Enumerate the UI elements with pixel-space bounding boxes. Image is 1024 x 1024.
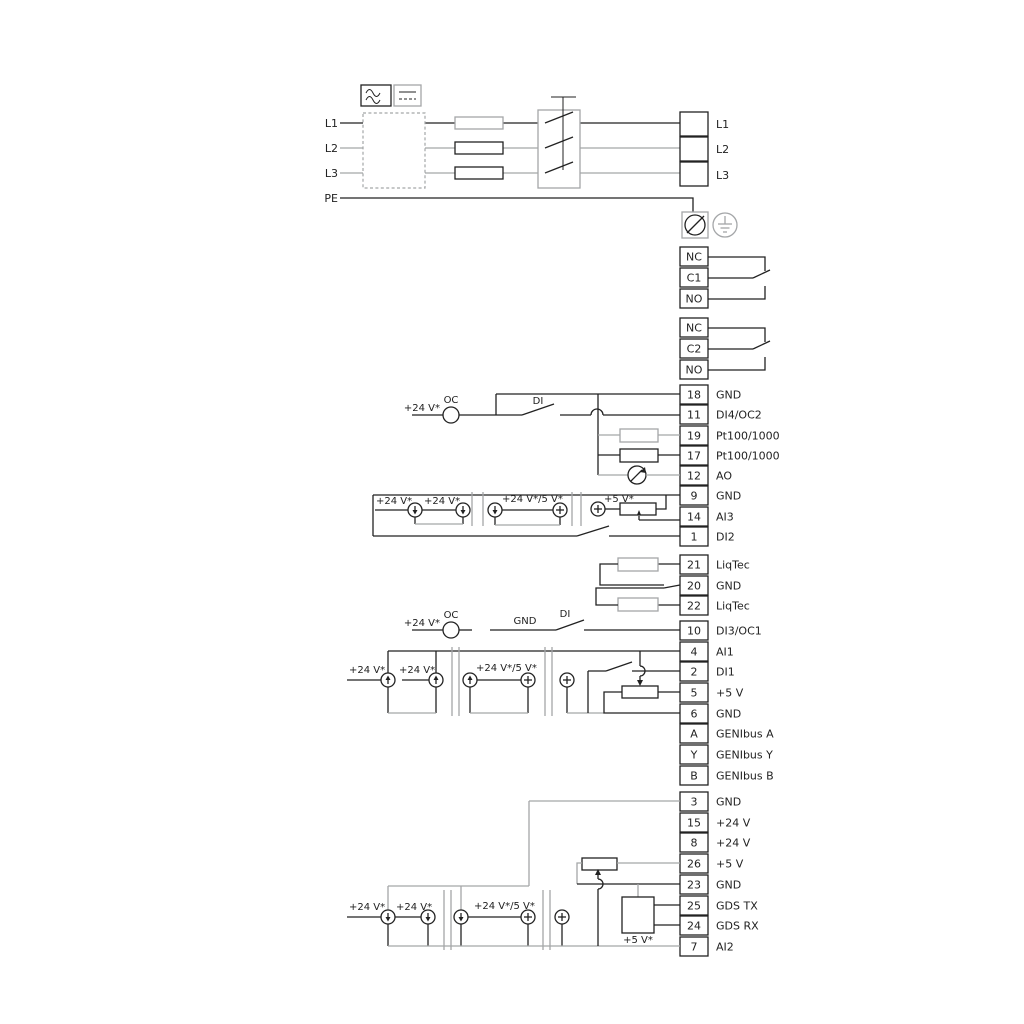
pt100-sensor-1 bbox=[598, 429, 680, 442]
power-input-section: L1 L2 L3 PE bbox=[324, 85, 737, 238]
di3-oc-label: OC bbox=[444, 610, 459, 621]
potentiometer-icon-26 bbox=[582, 858, 617, 870]
current-source-icon bbox=[456, 503, 470, 517]
ai2-24v-a-label: +24 V* bbox=[349, 902, 385, 913]
wiring-diagram: L1 L2 L3 PE bbox=[0, 0, 1024, 1024]
strip-c-b-label: GENIbus B bbox=[716, 770, 774, 783]
strip-d-24-no: 24 bbox=[687, 920, 701, 933]
di4-oc-label: OC bbox=[444, 395, 459, 406]
strip-c-4-no: 4 bbox=[691, 646, 698, 659]
strip-d-25-no: 25 bbox=[687, 900, 701, 913]
power-l3-label: L3 bbox=[325, 167, 338, 180]
terminal-strip-a: 18 GND 11 DI4/OC2 19 Pt100/1000 17 Pt100… bbox=[680, 385, 780, 546]
liqtec-sensor-1 bbox=[600, 558, 680, 585]
strip-c-2-no: 2 bbox=[691, 666, 698, 679]
strip-c-4-label: AI1 bbox=[716, 646, 734, 659]
analog-output-meter bbox=[598, 466, 680, 484]
liqtec-resistor-icon-1 bbox=[618, 558, 658, 571]
strip-b-22-label: LiqTec bbox=[716, 600, 750, 613]
earth-ground-icon bbox=[713, 213, 737, 237]
di3-switch-icon bbox=[556, 620, 584, 630]
strip-c-y-label: GENIbus Y bbox=[716, 749, 773, 762]
current-loop-icon bbox=[555, 910, 569, 924]
strip-a-18-no: 18 bbox=[687, 389, 701, 402]
strip-a-12-no: 12 bbox=[687, 470, 701, 483]
current-source-icon bbox=[381, 910, 395, 924]
relay2-nc: NC bbox=[686, 322, 702, 335]
terminal-strip-b: 21 LiqTec 20 GND 22 LiqTec bbox=[680, 555, 750, 615]
di4-24v-label: +24 V* bbox=[404, 403, 440, 414]
ai3-24v-b-label: +24 V* bbox=[424, 496, 460, 507]
strip-d-23-label: GND bbox=[716, 879, 741, 892]
liqtec-resistor-icon-2 bbox=[618, 598, 658, 611]
ai3-24v-a-label: +24 V* bbox=[376, 496, 412, 507]
strip-d-7-label: AI2 bbox=[716, 941, 734, 954]
di3-gnd-label: GND bbox=[514, 616, 537, 627]
current-loop-icon bbox=[521, 910, 535, 924]
ai3-24v5v-label: +24 V*/5 V* bbox=[502, 494, 563, 505]
current-source-icon bbox=[488, 503, 502, 517]
relay2-c2: C2 bbox=[687, 343, 702, 356]
strip-c-5-no: 5 bbox=[691, 687, 698, 700]
strip-c-b-no: B bbox=[690, 770, 698, 783]
pt100-resistor-icon-2 bbox=[620, 449, 658, 462]
strip-a-14-label: AI3 bbox=[716, 511, 734, 524]
mains-term-l2: L2 bbox=[716, 143, 729, 156]
current-source-icon bbox=[408, 503, 422, 517]
strip-d-7-no: 7 bbox=[691, 941, 698, 954]
strip-a-12-label: AO bbox=[716, 470, 732, 483]
relay1-no: NO bbox=[686, 293, 703, 306]
relay1-nc: NC bbox=[686, 251, 702, 264]
power-wires bbox=[340, 123, 693, 212]
di4-di-label: DI bbox=[533, 396, 544, 407]
strip-d-15-label: +24 V bbox=[716, 817, 751, 830]
open-collector-icon-1 bbox=[443, 407, 459, 423]
mains-terminal-block: L1 L2 L3 bbox=[680, 112, 729, 186]
mains-term-l3: L3 bbox=[716, 169, 729, 182]
ai2-5v-label: +5 V* bbox=[623, 935, 653, 946]
current-source-icon bbox=[381, 673, 395, 687]
dc-symbol-icon bbox=[394, 85, 421, 106]
terminal-strip-c: 10 DI3/OC1 4 AI1 2 DI1 5 +5 V 6 GND A GE… bbox=[680, 621, 774, 785]
ai1-24v5v-label: +24 V*/5 V* bbox=[476, 663, 537, 674]
power-l1-label: L1 bbox=[325, 117, 338, 130]
strip-d-3-label: GND bbox=[716, 796, 741, 809]
strip-a-19-label: Pt100/1000 bbox=[716, 430, 780, 443]
relay1-c1: C1 bbox=[687, 272, 702, 285]
fuse-icon-l3 bbox=[455, 167, 503, 179]
strip-c-2-label: DI1 bbox=[716, 666, 735, 679]
current-source-icon bbox=[454, 910, 468, 924]
pt100-sensor-2 bbox=[598, 449, 680, 462]
strip-a-18-label: GND bbox=[716, 389, 741, 402]
di3-oc1-circuit: +24 V* OC GND DI bbox=[404, 609, 680, 638]
strip-d-25-label: GDS TX bbox=[716, 900, 758, 913]
strip-d-8-no: 8 bbox=[691, 837, 698, 850]
di3-24v-label: +24 V* bbox=[404, 618, 440, 629]
strip-a-14-no: 14 bbox=[687, 511, 701, 524]
relay2-block: NC C2 NO bbox=[680, 318, 770, 379]
fuse-icon-l1 bbox=[455, 117, 503, 129]
strip-c-6-no: 6 bbox=[691, 708, 698, 721]
current-loop-icon bbox=[553, 503, 567, 517]
strip-d-8-label: +24 V bbox=[716, 837, 751, 850]
strip-c-10-no: 10 bbox=[687, 625, 701, 638]
current-source-icon bbox=[463, 673, 477, 687]
ai1-sensor-group: +24 V* +24 V* +24 V*/5 V* bbox=[347, 647, 680, 716]
strip-c-a-label: GENIbus A bbox=[716, 728, 774, 741]
ai3-sensor-group: +24 V* +24 V* +24 V*/5 V* +5 V* bbox=[373, 492, 680, 536]
strip-c-a-no: A bbox=[690, 728, 698, 741]
open-collector-icon-2 bbox=[443, 622, 459, 638]
current-loop-icon bbox=[591, 502, 605, 516]
terminal-strip-d: 3 GND 15 +24 V 8 +24 V 26 +5 V 23 GND 25… bbox=[680, 792, 759, 956]
power-pe-label: PE bbox=[324, 192, 338, 205]
gds-sensor-box bbox=[622, 897, 654, 933]
relay2-contact-icon bbox=[708, 328, 770, 370]
wire-hop bbox=[591, 409, 603, 415]
ai1-24v-a-label: +24 V* bbox=[349, 665, 385, 676]
ac-symbol-icon bbox=[361, 85, 391, 106]
current-loop-icon bbox=[560, 673, 574, 687]
strip-a-17-no: 17 bbox=[687, 450, 701, 463]
ai2-sensor-group: +24 V* +24 V* +24 V*/5 V* bbox=[347, 801, 680, 950]
pt100-resistor-icon-1 bbox=[620, 429, 658, 442]
ai1-24v-b-label: +24 V* bbox=[399, 665, 435, 676]
strip-a-11-no: 11 bbox=[687, 409, 701, 422]
potentiometer-icon-ai1 bbox=[622, 686, 658, 698]
current-source-icon bbox=[429, 673, 443, 687]
relay2-no: NO bbox=[686, 364, 703, 377]
strip-a-19-no: 19 bbox=[687, 430, 701, 443]
strip-b-20-no: 20 bbox=[687, 580, 701, 593]
strip-b-21-no: 21 bbox=[687, 559, 701, 572]
relay1-block: NC C1 NO bbox=[680, 247, 770, 308]
power-l2-label: L2 bbox=[325, 142, 338, 155]
strip-a-1-no: 1 bbox=[691, 531, 698, 544]
strip-d-26-no: 26 bbox=[687, 858, 701, 871]
strip-b-21-label: LiqTec bbox=[716, 559, 750, 572]
strip-d-3-no: 3 bbox=[691, 796, 698, 809]
strip-c-y-no: Y bbox=[690, 749, 698, 762]
strip-a-11-label: DI4/OC2 bbox=[716, 409, 762, 422]
strip-c-10-label: DI3/OC1 bbox=[716, 625, 762, 638]
pe-screw-terminal-icon bbox=[682, 212, 708, 238]
strip-a-1-label: DI2 bbox=[716, 531, 735, 544]
strip-d-23-no: 23 bbox=[687, 879, 701, 892]
mains-term-l1: L1 bbox=[716, 118, 729, 131]
filter-box bbox=[363, 113, 425, 188]
strip-b-20-label: GND bbox=[716, 580, 741, 593]
strip-d-26-label: +5 V bbox=[716, 858, 744, 871]
strip-a-9-no: 9 bbox=[691, 490, 698, 503]
strip-c-6-label: GND bbox=[716, 708, 741, 721]
contactor-icon bbox=[538, 97, 580, 188]
strip-d-24-label: GDS RX bbox=[716, 920, 759, 933]
relay1-contact-icon bbox=[708, 257, 770, 299]
liqtec-sensor-2 bbox=[596, 585, 680, 611]
fuse-icon-l2 bbox=[455, 142, 503, 154]
current-source-icon bbox=[421, 910, 435, 924]
strip-c-5-label: +5 V bbox=[716, 687, 744, 700]
strip-a-17-label: Pt100/1000 bbox=[716, 450, 780, 463]
strip-b-22-no: 22 bbox=[687, 600, 701, 613]
strip-a-9-label: GND bbox=[716, 490, 741, 503]
di3-di-label: DI bbox=[560, 609, 571, 620]
strip-d-15-no: 15 bbox=[687, 817, 701, 830]
current-loop-icon bbox=[521, 673, 535, 687]
